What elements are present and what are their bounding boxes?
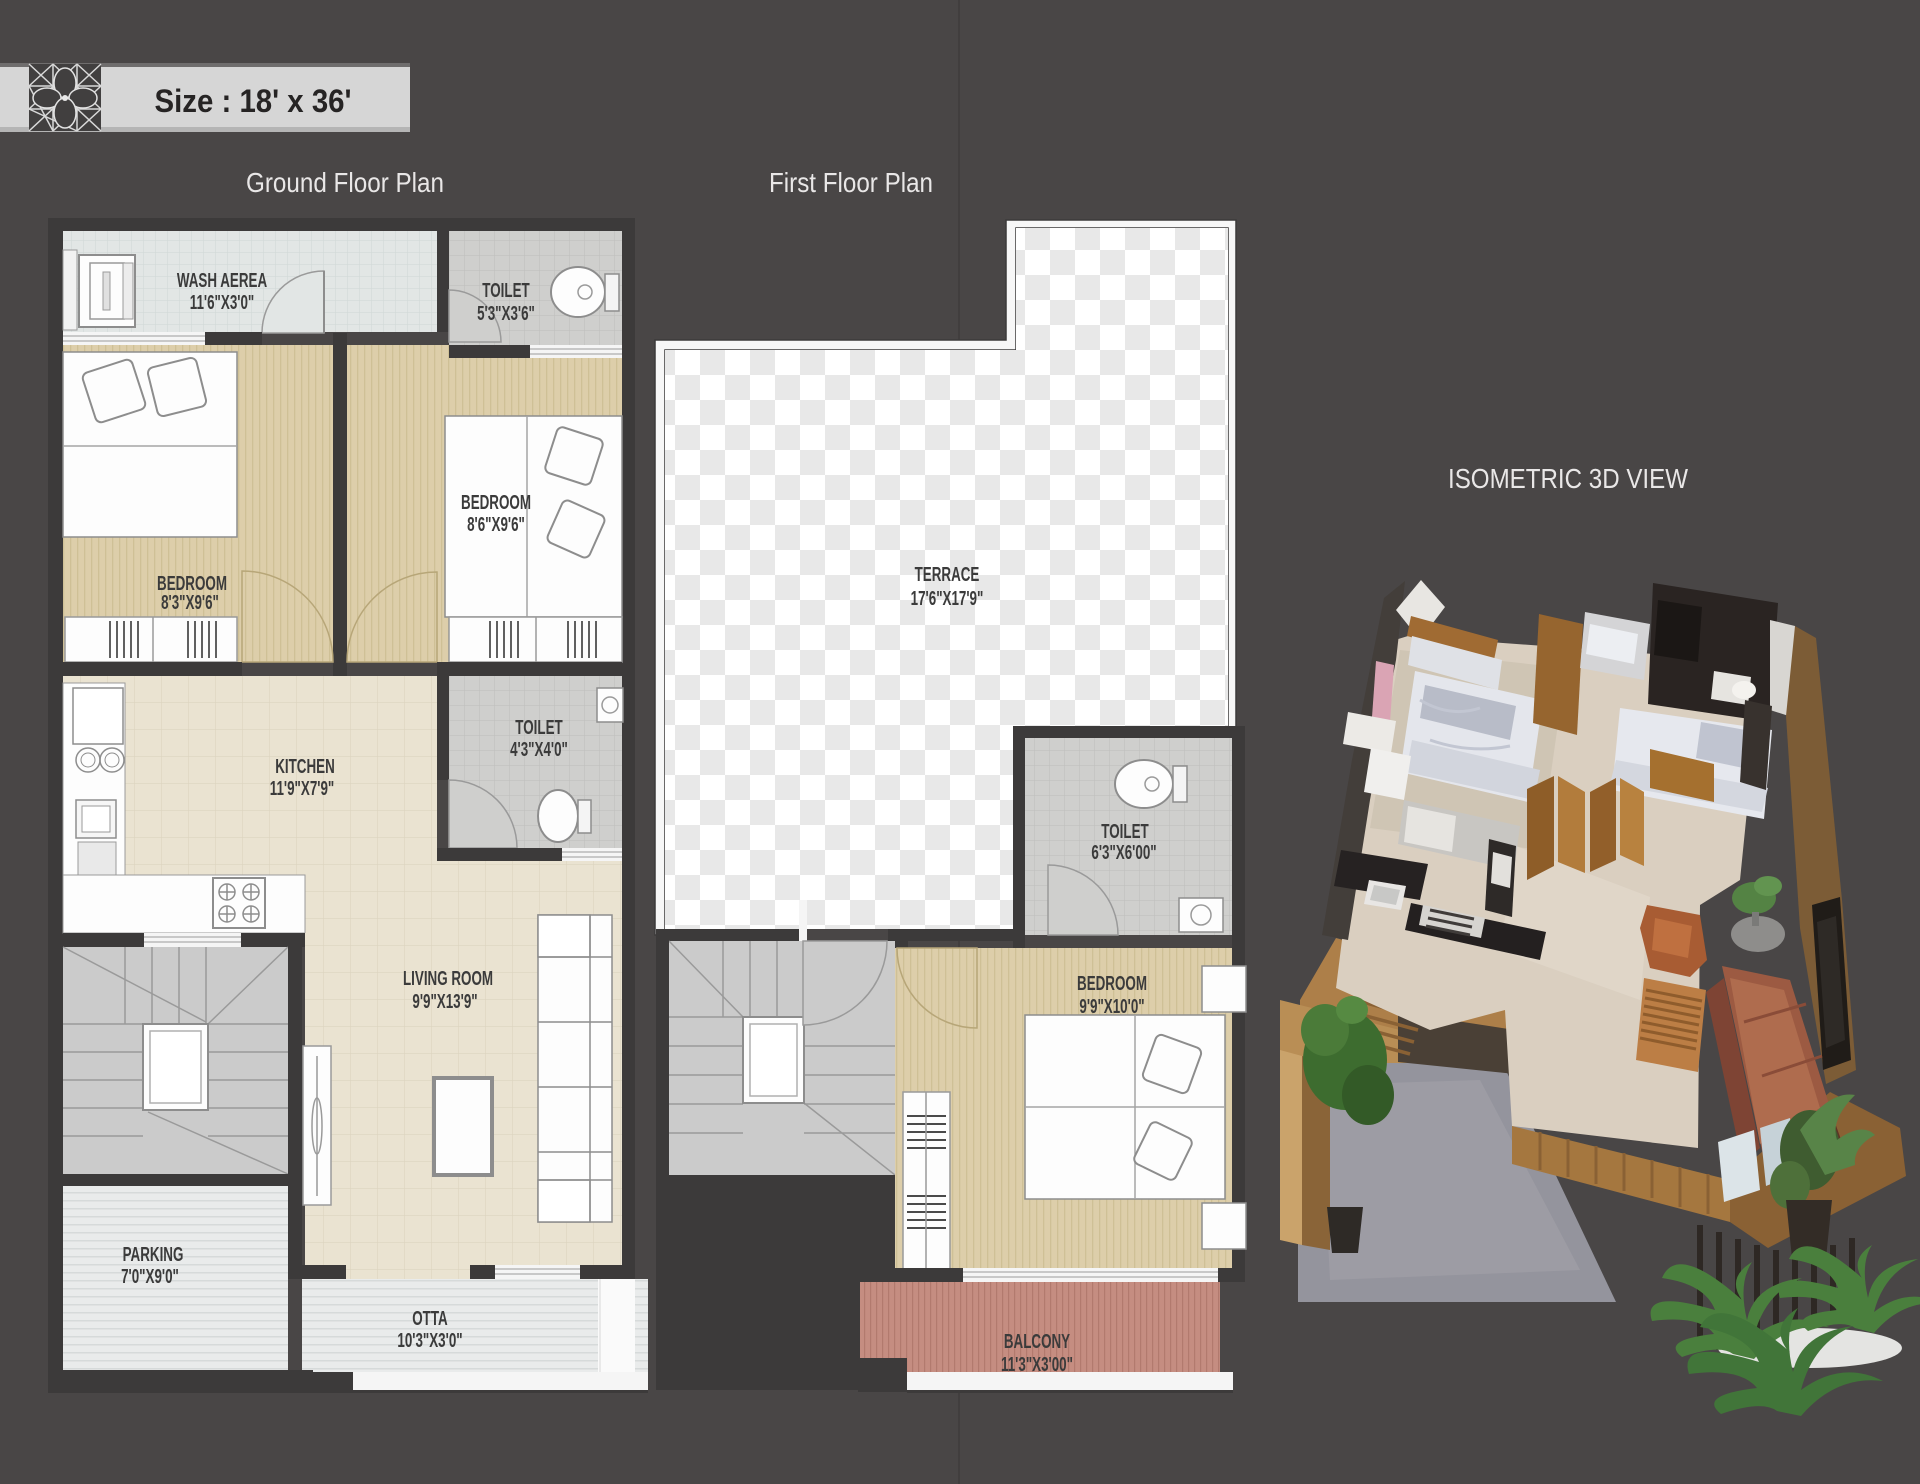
svg-text:Size : 18' x 36': Size : 18' x 36' [155,83,352,119]
svg-text:8'3"X9'6": 8'3"X9'6" [161,591,219,613]
svg-text:10'3"X3'0": 10'3"X3'0" [397,1329,462,1351]
svg-text:ISOMETRIC 3D VIEW: ISOMETRIC 3D VIEW [1448,463,1688,494]
svg-text:WASH AEREA: WASH AEREA [177,269,267,291]
svg-text:KITCHEN: KITCHEN [275,755,335,777]
svg-text:TOILET: TOILET [1101,820,1149,842]
svg-text:9'9"X10'0": 9'9"X10'0" [1079,995,1144,1017]
svg-text:TOILET: TOILET [482,279,530,301]
svg-text:LIVING ROOM: LIVING ROOM [403,967,493,989]
svg-text:OTTA: OTTA [412,1307,447,1329]
svg-text:7'0"X9'0": 7'0"X9'0" [121,1265,179,1287]
svg-text:11'9"X7'9": 11'9"X7'9" [270,777,335,799]
svg-text:BEDROOM: BEDROOM [461,491,531,513]
svg-text:TERRACE: TERRACE [915,563,980,585]
svg-text:4'3"X4'0": 4'3"X4'0" [510,738,568,760]
svg-text:First Floor Plan: First Floor Plan [769,167,933,198]
svg-text:9'9"X13'9": 9'9"X13'9" [412,990,477,1012]
svg-text:6'3"X6'00": 6'3"X6'00" [1091,841,1156,863]
svg-text:11'6"X3'0": 11'6"X3'0" [190,291,255,313]
svg-text:BALCONY: BALCONY [1004,1330,1071,1352]
svg-text:5'3"X3'6": 5'3"X3'6" [477,302,535,324]
svg-text:PARKING: PARKING [123,1243,184,1265]
svg-text:Ground Floor Plan: Ground Floor Plan [246,167,444,198]
svg-text:TOILET: TOILET [515,716,563,738]
svg-text:8'6"X9'6": 8'6"X9'6" [467,513,525,535]
svg-text:17'6"X17'9": 17'6"X17'9" [911,587,984,609]
svg-text:BEDROOM: BEDROOM [1077,972,1147,994]
